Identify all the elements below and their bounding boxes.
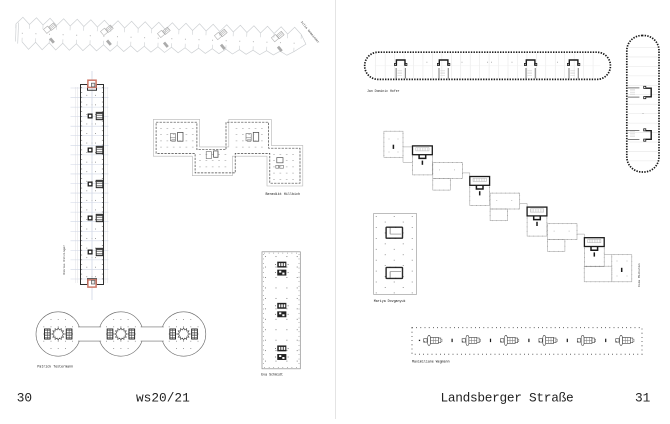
svg-text:Eva Schmidt: Eva Schmidt bbox=[261, 373, 283, 377]
svg-text:Maximiliane Wegmann: Maximiliane Wegmann bbox=[412, 360, 450, 364]
svg-text:Mariya Dovganyuk: Mariya Dovganyuk bbox=[374, 299, 406, 303]
svg-text:Jan Dominic Hofer: Jan Dominic Hofer bbox=[367, 89, 400, 93]
svg-text:Doda Michelim: Doda Michelim bbox=[637, 263, 641, 287]
svg-text:Patrick Testermann: Patrick Testermann bbox=[37, 365, 73, 369]
svg-text:30: 30 bbox=[17, 391, 32, 406]
svg-text:31: 31 bbox=[635, 391, 651, 406]
svg-text:Landsberger Straße: Landsberger Straße bbox=[441, 391, 574, 406]
svg-text:Niklas Ritzinger: Niklas Ritzinger bbox=[62, 245, 66, 275]
svg-text:Benedikt Hillbich: Benedikt Hillbich bbox=[266, 192, 301, 197]
svg-text:ws20/21: ws20/21 bbox=[136, 391, 190, 406]
